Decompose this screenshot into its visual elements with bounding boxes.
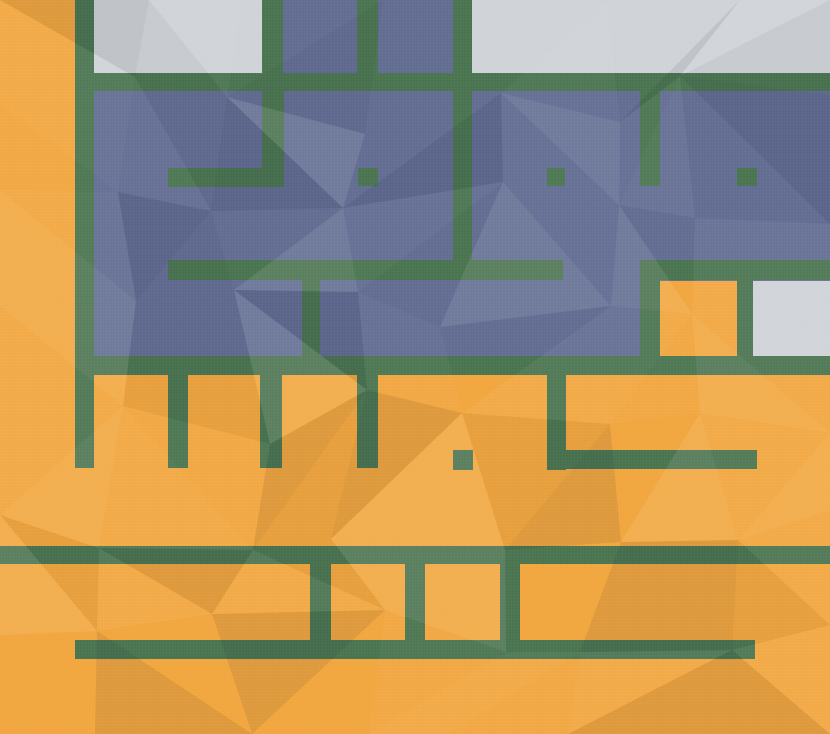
wall-dot-d [453, 450, 473, 470]
wall-cell-right [737, 280, 753, 356]
wall-elbow-horizontal [168, 168, 284, 187]
wall-l-horizontal [547, 450, 757, 469]
wall-dot-b [547, 168, 565, 186]
wall-connector-vertical [302, 280, 320, 356]
blue-room-top-b [378, 0, 453, 73]
wall-hanging-3 [357, 375, 378, 468]
wall-top-stub-1 [262, 0, 283, 73]
wall-dot-a [358, 168, 378, 186]
wall-band3 [75, 356, 830, 375]
level-map-canvas[interactable] [0, 0, 830, 734]
wall-hanging-2 [260, 375, 282, 468]
wall-top-stub-3 [453, 0, 472, 73]
wall-rung-3 [500, 564, 520, 640]
gray-room-mid-right [753, 281, 830, 356]
wall-rung-2 [405, 564, 425, 640]
wall-top-band [75, 73, 830, 91]
wall-rung-1 [310, 564, 331, 640]
gray-room-top-left [94, 0, 262, 73]
wall-band2-left [168, 260, 563, 280]
wall-left-vertical [75, 0, 94, 468]
wall-cell-left [640, 280, 660, 356]
wall-bottom-line-2 [75, 640, 755, 659]
orange-cell-in-blue [660, 281, 737, 356]
wall-hanging-1 [168, 375, 188, 468]
wall-mid-vertical-short [640, 91, 660, 186]
wall-bottom-line-1 [0, 546, 830, 564]
wall-top-stub-2 [357, 0, 378, 73]
wall-mid-vertical-long [453, 91, 472, 260]
gray-room-top-right [472, 0, 830, 73]
blue-room-top-a [283, 0, 357, 73]
wall-band2-right [640, 260, 830, 280]
wall-dot-c [737, 168, 757, 186]
